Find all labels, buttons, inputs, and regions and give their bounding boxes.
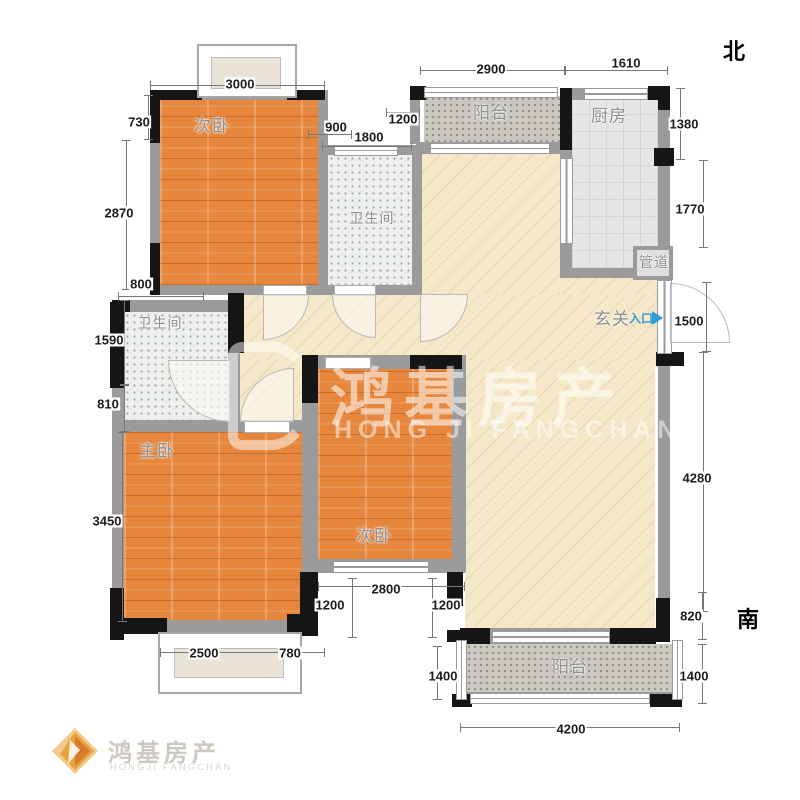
entrance-label: 入口 [629, 310, 653, 327]
dim-right-1380: 1380 [669, 118, 700, 131]
room-label-bathroom-top: 卫生间 [350, 211, 395, 225]
column [654, 148, 674, 166]
wall [412, 145, 422, 295]
room-label-entry: 玄关 [594, 311, 630, 328]
floor-bedroom-top [160, 100, 318, 285]
window [584, 88, 648, 100]
dim-top-1800: 1800 [354, 131, 385, 144]
dim-right-4280: 4280 [682, 472, 713, 485]
compass-south: 南 [737, 602, 759, 634]
dim-left-800: 800 [129, 278, 153, 291]
dim-top-900: 900 [324, 121, 348, 134]
dim-bottom-1200a: 1200 [315, 599, 346, 612]
dim-left-3450: 3450 [92, 515, 123, 528]
window [492, 631, 610, 643]
dim-bottom-780: 780 [278, 647, 302, 660]
dim-line [706, 282, 707, 352]
column [658, 88, 670, 110]
room-label-bathroom-left: 卫生间 [138, 316, 183, 330]
dim-bottom-1200b: 1200 [431, 599, 462, 612]
dim-left-810: 810 [96, 398, 120, 411]
room-label-balcony-bottom: 阳台 [552, 659, 588, 676]
room-label-kitchen: 厨房 [591, 108, 627, 125]
dim-right-1500: 1500 [674, 315, 705, 328]
column [656, 352, 684, 366]
dim-top-1200: 1200 [388, 113, 419, 126]
room-label-bedroom-top: 次卧 [194, 118, 230, 135]
room-label-duct: 管道 [639, 255, 669, 269]
dim-line [118, 296, 204, 297]
sliding-door-kitchen [560, 158, 573, 244]
window [430, 143, 550, 154]
dim-bottom-1400b: 1400 [679, 670, 710, 683]
dim-top-2900: 2900 [476, 63, 507, 76]
brand-logo-icon [50, 726, 100, 776]
floor-master-bedroom [124, 432, 302, 622]
column [656, 598, 670, 642]
dim-top-1610: 1610 [611, 57, 642, 70]
room-label-master-bedroom: 主卧 [139, 443, 175, 460]
compass-north: 北 [723, 34, 745, 66]
brand-logo-text-en: HONGJI FANGCHAN [110, 762, 233, 772]
floor-living-upper [422, 154, 560, 295]
window [470, 693, 650, 704]
column [150, 95, 160, 143]
room-label-bedroom-bottom: 次卧 [356, 528, 392, 545]
wall [112, 300, 240, 312]
wall [560, 268, 640, 278]
dim-line [124, 385, 125, 432]
column [610, 628, 656, 644]
dim-bottom-1400a: 1400 [428, 670, 459, 683]
dim-line [160, 652, 295, 653]
dim-right-1770: 1770 [675, 203, 706, 216]
watermark-logo-icon [228, 342, 314, 450]
dim-right-820: 820 [679, 610, 703, 623]
watermark-text-en: HONG JI FANGCHAN [334, 416, 681, 445]
dim-bottom-2800: 2800 [371, 583, 402, 596]
dim-left-2870: 2870 [104, 207, 135, 220]
window [424, 87, 558, 98]
dim-left-1590: 1590 [94, 334, 125, 347]
column [560, 88, 572, 150]
dim-left-730: 730 [127, 116, 151, 129]
dim-line [352, 578, 353, 638]
floor-plan: 3000 900 1800 1200 2900 1610 730 2870 80… [0, 0, 800, 800]
dim-bottom-4200: 4200 [556, 723, 587, 736]
dim-bottom-2500: 2500 [189, 647, 220, 660]
dim-line [322, 146, 412, 147]
room-label-balcony-top: 阳台 [473, 105, 509, 122]
entrance-arrow-icon [652, 311, 663, 325]
dim-top-3000: 3000 [225, 78, 256, 91]
window [333, 561, 429, 573]
